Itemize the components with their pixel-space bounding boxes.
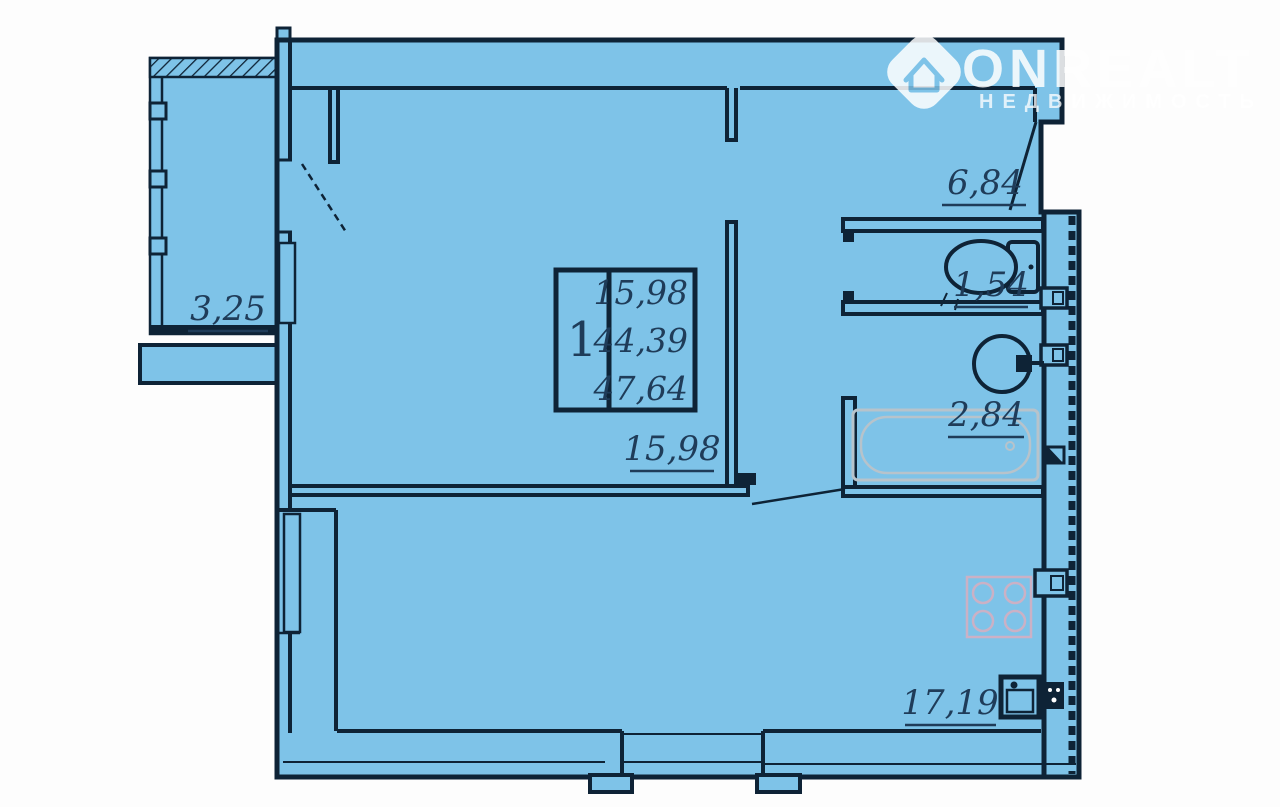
fixture-dot xyxy=(1056,688,1060,692)
kitchen-sink-faucet xyxy=(1011,682,1018,689)
living-room-area-label: 15,98 xyxy=(623,429,720,469)
wall-stub xyxy=(736,473,756,485)
balcony-area-label: 3,25 xyxy=(190,289,266,329)
toilet-button xyxy=(1029,265,1034,270)
floor-plan-image: 3,25 6,84 1,54 2,84 15,98 17,19 1 15,98 … xyxy=(0,0,1280,807)
window-mullion-icon xyxy=(150,171,166,187)
total-area-value: 47,64 xyxy=(593,369,688,408)
facade-tab xyxy=(757,775,800,792)
facade-tab xyxy=(590,775,632,792)
living-area-value: 15,98 xyxy=(594,273,688,312)
electrical-fixture-icon xyxy=(1044,682,1064,709)
fixture-dot xyxy=(1052,698,1057,703)
usable-area-value: 44,39 xyxy=(593,321,688,360)
window-mullion-icon xyxy=(150,238,166,254)
logo-brand: ONREALT xyxy=(962,39,1254,99)
window-mullion-icon xyxy=(150,103,166,119)
sink-faucet xyxy=(1016,355,1032,372)
logo-subtitle: НЕДВИЖИМОСТЬ xyxy=(979,91,1263,113)
window-icon xyxy=(279,243,295,323)
fixture-dot xyxy=(1048,688,1052,692)
hallway-area-label: 6,84 xyxy=(947,163,1023,203)
wc-top-partition xyxy=(843,219,1043,231)
wc-area-label: 1,54 xyxy=(953,265,1029,305)
balcony-hatched-wall xyxy=(150,58,283,77)
bathroom-area-label: 2,84 xyxy=(947,395,1024,435)
balcony-ledge xyxy=(140,345,283,383)
wall-stub xyxy=(843,231,854,242)
floor-plan-svg: 3,25 6,84 1,54 2,84 15,98 17,19 1 15,98 … xyxy=(0,0,1280,807)
fixture-body xyxy=(1044,682,1064,709)
wall-stub xyxy=(843,291,854,302)
kitchen-sink-icon xyxy=(1001,677,1046,717)
bathroom-bottom-wall xyxy=(843,487,1043,496)
window-icon xyxy=(284,514,300,632)
kitchen-area-label: 17,19 xyxy=(901,683,998,723)
